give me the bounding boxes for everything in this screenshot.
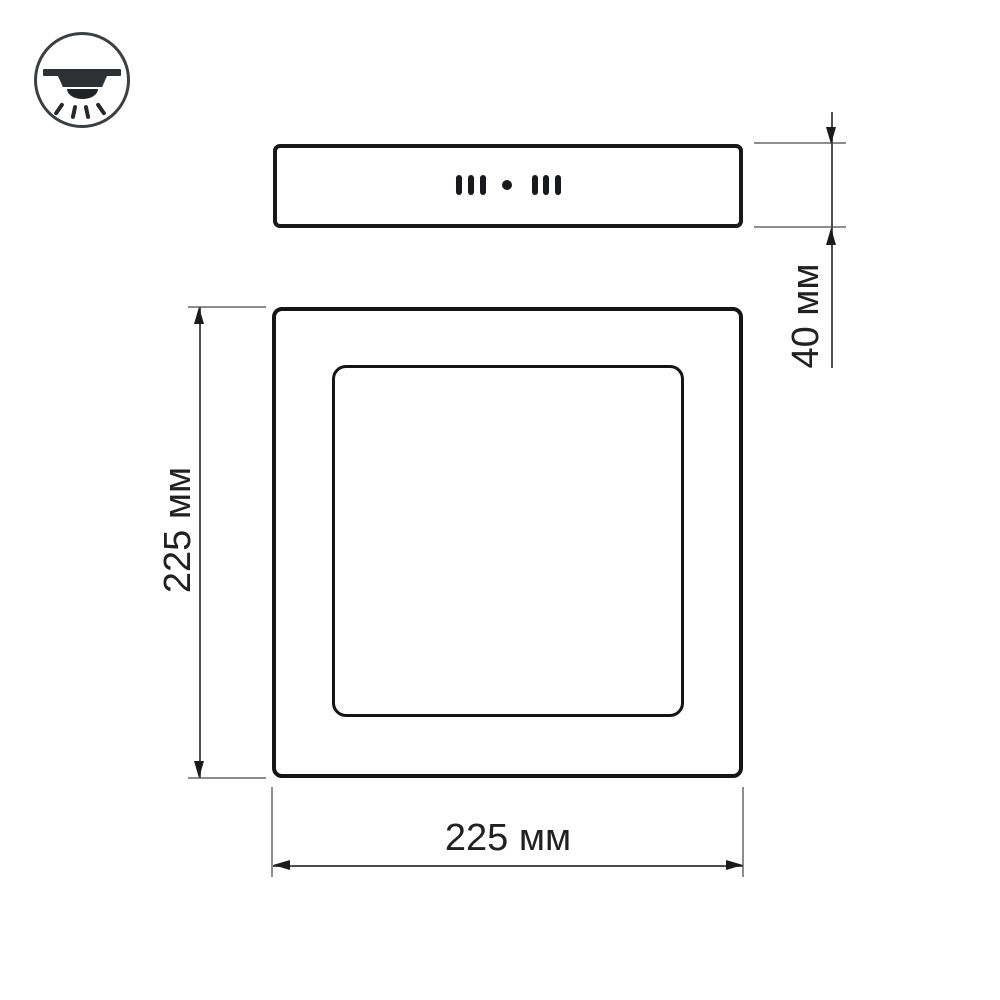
downlight-icon [34, 32, 130, 128]
side-view [273, 144, 743, 228]
vent-slot [532, 175, 538, 195]
icon-ceiling-plate [43, 69, 121, 76]
vent-slot [468, 175, 474, 195]
front-view [272, 307, 743, 778]
vent-slot [543, 175, 549, 195]
vent-slot [480, 175, 486, 195]
arrowhead-up-icon [194, 307, 204, 324]
vent-slot [555, 175, 561, 195]
arrowhead-up-icon [826, 228, 836, 245]
height-dimension-line [199, 307, 201, 778]
arrowhead-down-icon [826, 127, 836, 144]
icon-lamp-body [58, 76, 107, 87]
width-dimension-label: 225 мм [408, 818, 608, 858]
arrowhead-right-icon [726, 860, 743, 870]
dimensional-drawing: 40 мм 225 мм 225 мм [0, 0, 1000, 1000]
height-dimension-label: 225 мм [158, 450, 198, 610]
arrowhead-down-icon [194, 761, 204, 778]
vent-slot [456, 175, 462, 195]
front-view-diffuser [332, 365, 684, 717]
depth-dimension-label: 40 мм [786, 251, 826, 381]
arrowhead-left-icon [273, 860, 290, 870]
width-dimension-line [273, 865, 743, 867]
mounting-dot [502, 180, 512, 190]
